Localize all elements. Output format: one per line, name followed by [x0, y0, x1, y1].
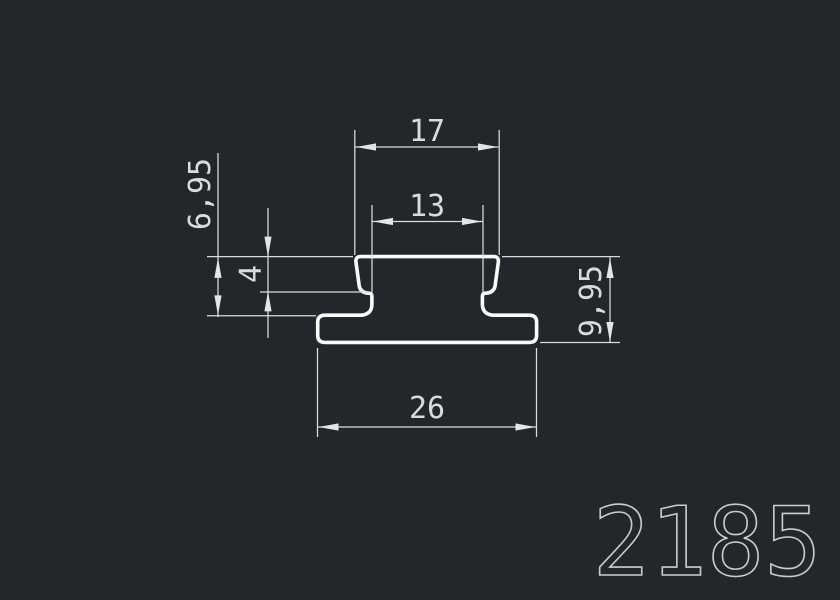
dimension-value: 4	[234, 265, 269, 283]
arrowhead-right-icon	[462, 218, 482, 225]
arrowhead-left-icon	[319, 423, 339, 430]
arrowhead-right-icon	[516, 423, 536, 430]
dimension-total-height: 9,95	[502, 257, 620, 343]
dimension-base-width: 26	[318, 348, 537, 437]
dimension-value: 26	[409, 391, 445, 426]
part-number: 2185	[593, 488, 822, 598]
cad-drawing: 17 13 6,95 4	[0, 0, 840, 600]
dimension-slot-width: 13	[372, 189, 483, 292]
dimension-top-width: 17	[355, 114, 499, 255]
arrowhead-down-icon	[214, 295, 221, 315]
dimension-value: 17	[409, 114, 445, 149]
arrowhead-left-icon	[373, 218, 393, 225]
dimension-step-height: 4	[234, 208, 369, 338]
arrowhead-left-icon	[356, 143, 376, 150]
profile-outline	[318, 257, 537, 343]
arrowhead-right-icon	[478, 143, 498, 150]
dimension-value: 13	[409, 189, 445, 224]
arrowhead-down-icon	[264, 237, 271, 257]
arrowhead-up-icon	[264, 291, 271, 311]
cad-viewport: 17 13 6,95 4	[0, 0, 840, 600]
dimension-value: 9,95	[574, 265, 609, 337]
arrowhead-up-icon	[214, 258, 221, 278]
dimension-value: 6,95	[183, 158, 218, 230]
